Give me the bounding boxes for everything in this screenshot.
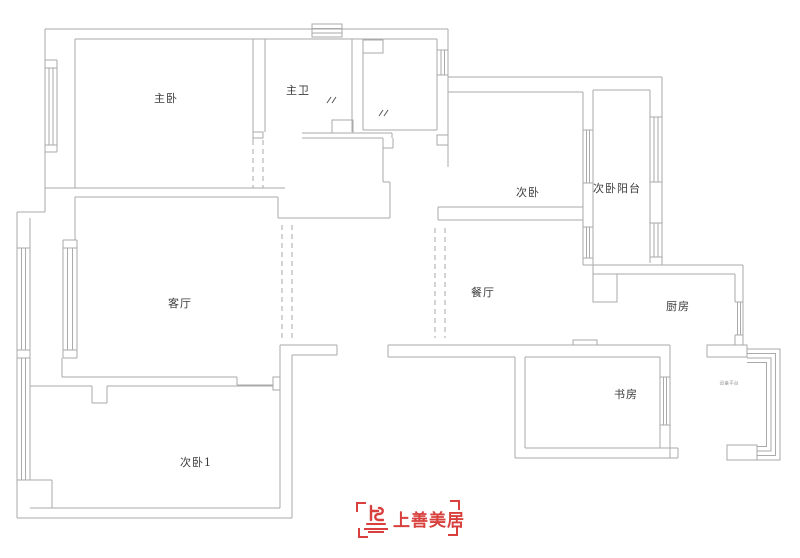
brand-logo: 上善美居 [356,500,460,538]
door-swing-marks [327,97,388,116]
fixtures [302,120,393,148]
walls [17,29,743,518]
room-label-living-room: 客厅 [168,295,192,311]
room-label-kitchen: 厨房 [666,298,690,314]
room-label-second-bedroom-balcony: 次卧阳台 [593,180,641,196]
floorplan-page: 主卧 主卫 次卧 次卧阳台 客厅 餐厅 厨房 书房 次卧1 设备平台 上善美居 [0,0,800,558]
shangshan-meiju-logo-icon [363,503,389,529]
platform-railing [707,345,780,460]
room-label-dining-room: 餐厅 [471,284,495,300]
room-label-master-bath: 主卫 [286,82,310,98]
logo-brand-text: 上善美居 [393,506,465,531]
logo-microtext [364,528,388,534]
floorplan-drawing [0,0,800,558]
room-label-second-bedroom-1: 次卧1 [180,454,212,470]
room-label-second-bedroom: 次卧 [516,184,540,200]
door-openings-dashed [253,140,445,338]
room-label-study: 书房 [614,386,638,402]
room-label-equipment-platform: 设备平台 [719,380,738,387]
windows [17,24,743,480]
room-label-master-bedroom: 主卧 [154,90,178,106]
